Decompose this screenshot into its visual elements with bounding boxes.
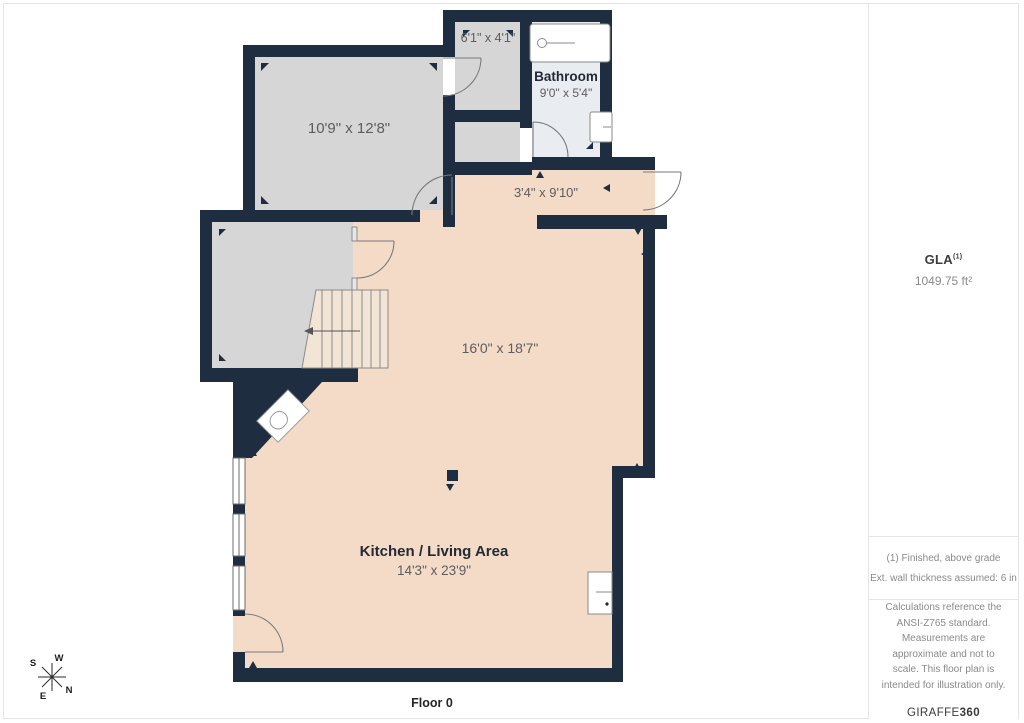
bathroom-dims: 9'0" x 5'4" — [540, 86, 592, 100]
exterior-cut — [200, 160, 243, 212]
closet-floor — [455, 122, 520, 162]
compass-west: W — [55, 653, 64, 664]
floor-label: Floor 0 — [411, 696, 453, 710]
logo-text-regular: GIRAFFE — [907, 707, 960, 719]
floorplan-drawing: 10'9" x 12'8" 6'1" x 4'1" Bathroom 9'0" … — [0, 0, 870, 723]
compass-east: E — [40, 691, 46, 702]
oven-icon — [588, 572, 612, 614]
note-finished-grade: (1) Finished, above grade — [887, 553, 1001, 564]
gla-text: GLA — [925, 252, 953, 267]
giraffe360-logo: GIRAFFE360 — [907, 707, 980, 719]
bathroom-name: Bathroom — [534, 69, 598, 84]
hallway-dims: 3'4" x 9'10" — [514, 185, 578, 200]
compass-icon: W S N E — [30, 653, 73, 702]
compass-south: S — [30, 658, 36, 669]
room1-dims: 10'9" x 12'8" — [308, 120, 390, 137]
gla-label: GLA(1) — [925, 252, 963, 267]
toilet-icon — [590, 112, 612, 142]
gla-section: GLA(1) 1049.75 ft² — [869, 4, 1018, 536]
floorplan-page: 10'9" x 12'8" 6'1" x 4'1" Bathroom 9'0" … — [0, 0, 1024, 723]
windows — [233, 458, 245, 610]
bathtub-icon — [530, 24, 610, 62]
kitchen-living-name: Kitchen / Living Area — [360, 543, 509, 560]
gla-superscript: (1) — [953, 254, 962, 261]
exterior-cut — [623, 478, 657, 684]
column — [447, 470, 458, 481]
note-wall-thickness: Ext. wall thickness assumed: 6 in — [870, 573, 1017, 584]
gla-value: 1049.75 ft² — [915, 274, 972, 288]
kitchen-living-dims: 14'3" x 23'9" — [397, 563, 471, 578]
disclaimer-text: Calculations reference the ANSI-Z765 sta… — [879, 600, 1008, 693]
room2-dims: 6'1" x 4'1" — [461, 31, 516, 45]
disclaimer-section: Calculations reference the ANSI-Z765 sta… — [869, 599, 1018, 719]
info-panel: GLA(1) 1049.75 ft² (1) Finished, above g… — [868, 4, 1018, 719]
logo-text-bold: 360 — [960, 707, 980, 719]
compass-north: N — [66, 685, 73, 696]
notes-section: (1) Finished, above grade Ext. wall thic… — [869, 536, 1018, 599]
staircase — [302, 290, 388, 368]
exterior-cut — [200, 382, 233, 684]
upper-area-dims: 16'0" x 18'7" — [462, 340, 539, 356]
